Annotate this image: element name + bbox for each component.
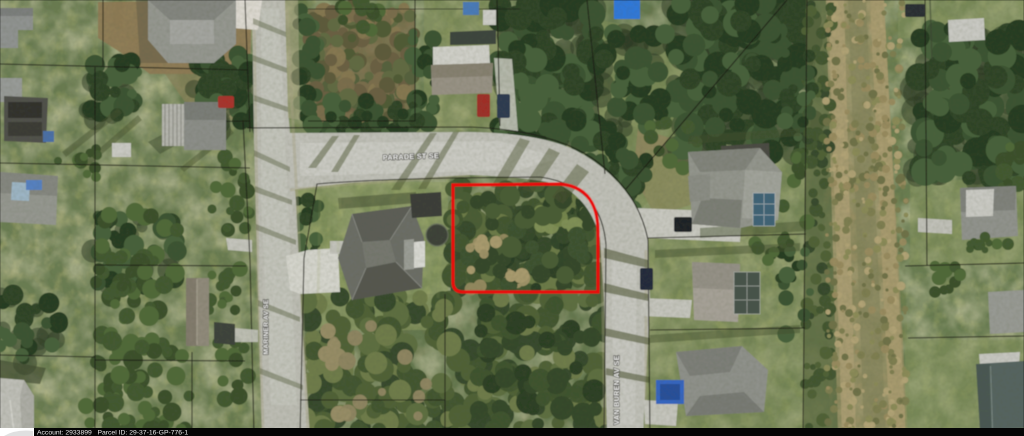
svg-text:VAN BUREN AV SE: VAN BUREN AV SE	[612, 355, 621, 424]
svg-text:Account: 2933899 Parcel ID:: Account: 2933899 Parcel ID: 29-37-16-GP-…	[37, 430, 188, 436]
svg-text:MARINER AV SE: MARINER AV SE	[263, 299, 270, 355]
